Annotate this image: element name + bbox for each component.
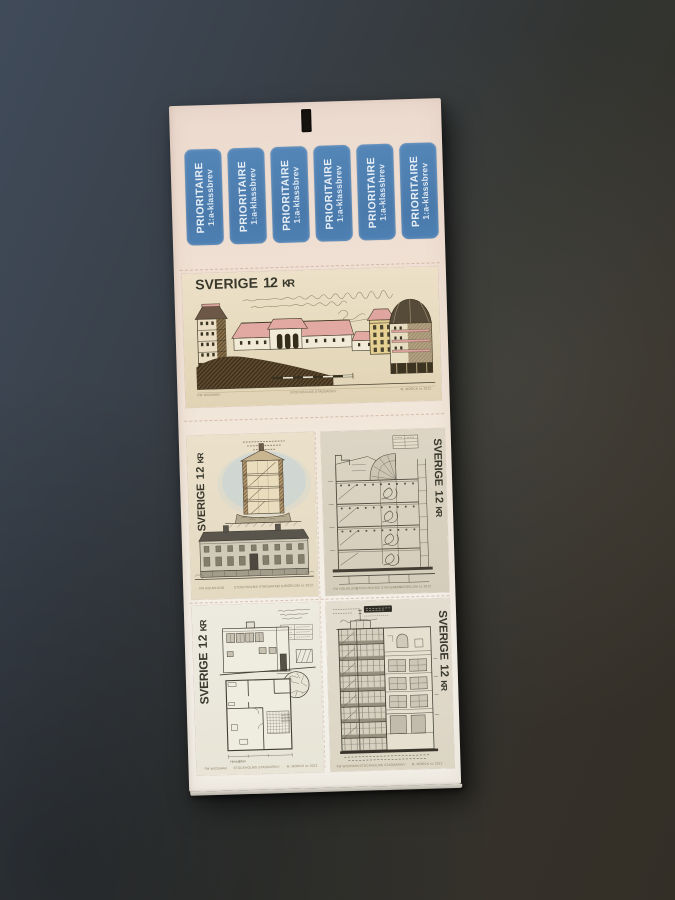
first-class-label: 1:a-klassbrev xyxy=(290,166,301,223)
plan-label: Huvudplan xyxy=(230,759,246,763)
priority-tab: PRIORITAIRE1:a-klassbrev xyxy=(270,146,310,243)
priority-tab: PRIORITAIRE1:a-klassbrev xyxy=(399,142,439,239)
city-building-drawing xyxy=(336,606,440,760)
currency: KR xyxy=(434,506,444,517)
right-tower-section xyxy=(389,299,433,374)
stamp-city-drawing: SVERIGE 12 KR xyxy=(326,598,455,772)
priority-tab: PRIORITAIRE1:a-klassbrev xyxy=(313,145,353,242)
stamp-estate-elevation: SVERIGE 12 KR xyxy=(182,266,442,408)
country-name: SVERIGE xyxy=(195,483,208,531)
microtext-left: FM WICKMAN xyxy=(197,393,220,398)
denomination: 12 xyxy=(438,664,450,677)
microtext-left: FM HOLMLUND xyxy=(199,586,225,591)
microtext-left: FM WICKMAN xyxy=(205,766,228,771)
currency: KR xyxy=(439,680,449,691)
microtext-left: FM HOLMLUND xyxy=(333,586,359,591)
stamp-section-elevation: SVERIGE 12 KR xyxy=(187,432,319,600)
first-class-label: 1:a-klassbrev xyxy=(247,167,258,224)
currency: KR xyxy=(198,619,208,632)
currency: KR xyxy=(195,452,205,463)
denomination: 12 xyxy=(196,634,210,649)
stamp-stair-drawing: SVERIGE 12 KR xyxy=(321,428,450,596)
country-name: SVERIGE xyxy=(195,275,258,293)
country-name: SVERIGE xyxy=(436,610,449,660)
stamp-booklet: PRIORITAIRE1:a-klassbrev PRIORITAIRE1:a-… xyxy=(169,98,461,792)
stamp-estate-drawing: SVERIGE 12 KR xyxy=(182,266,442,408)
denomination: 12 xyxy=(195,466,207,479)
first-class-label: 1:a-klassbrev xyxy=(419,162,430,219)
country-name: SVERIGE xyxy=(431,438,444,486)
priority-tab-text: PRIORITAIRE1:a-klassbrev xyxy=(356,144,396,241)
priority-tab: PRIORITAIRE1:a-klassbrev xyxy=(227,147,267,244)
denomination: 12 xyxy=(432,490,444,503)
priority-tab-text: PRIORITAIRE1:a-klassbrev xyxy=(313,145,353,242)
microtext-left: FM WICKMAN xyxy=(336,764,359,769)
currency: KR xyxy=(282,278,296,290)
stamp-villa-plan: SVERIGE 12 KR xyxy=(192,602,324,776)
first-class-label: 1:a-klassbrev xyxy=(204,168,215,225)
die-cut-line xyxy=(184,413,444,422)
photo-background: PRIORITAIRE1:a-klassbrev PRIORITAIRE1:a-… xyxy=(0,0,675,900)
priority-tab-text: PRIORITAIRE1:a-klassbrev xyxy=(227,147,267,244)
country-name: SVERIGE xyxy=(196,652,212,704)
title-block xyxy=(393,435,418,449)
stamp-stair-section: SVERIGE 12 KR xyxy=(321,428,450,596)
hang-hole xyxy=(301,109,312,132)
priority-tab-text: PRIORITAIRE1:a-klassbrev xyxy=(184,149,224,246)
priority-tab: PRIORITAIRE1:a-klassbrev xyxy=(356,144,396,241)
priority-tab-text: PRIORITAIRE1:a-klassbrev xyxy=(270,146,310,243)
denomination: 12 xyxy=(263,274,278,290)
stamp-villa-drawing: SVERIGE 12 KR xyxy=(192,602,324,776)
stamp-section-drawing: SVERIGE 12 KR xyxy=(187,432,319,600)
priority-tab-text: PRIORITAIRE1:a-klassbrev xyxy=(399,142,439,239)
first-class-label: 1:a-klassbrev xyxy=(333,165,344,222)
stamp-city-facade: SVERIGE 12 KR xyxy=(326,598,455,772)
first-class-label: 1:a-klassbrev xyxy=(376,163,387,220)
priority-tab: PRIORITAIRE1:a-klassbrev xyxy=(184,149,224,246)
